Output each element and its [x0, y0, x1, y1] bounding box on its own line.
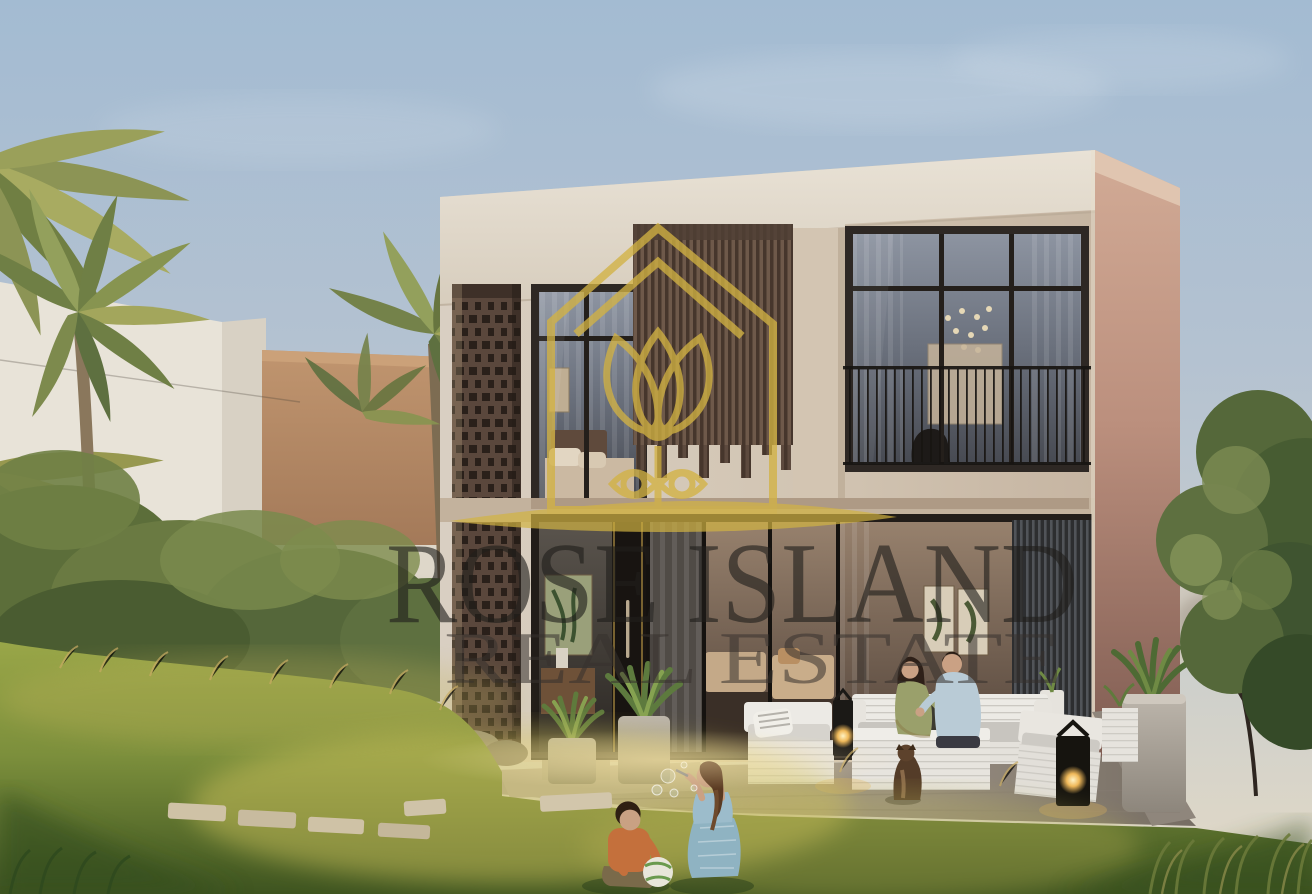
villa-side-wall: [1095, 150, 1180, 762]
scene-illustration: ROSE ISLAND REAL ESTATE: [0, 0, 1312, 894]
ball: [643, 857, 673, 887]
watermark-brand-tagline: REAL ESTATE: [444, 618, 1062, 700]
villa-render-photo: ROSE ISLAND REAL ESTATE: [0, 0, 1312, 894]
